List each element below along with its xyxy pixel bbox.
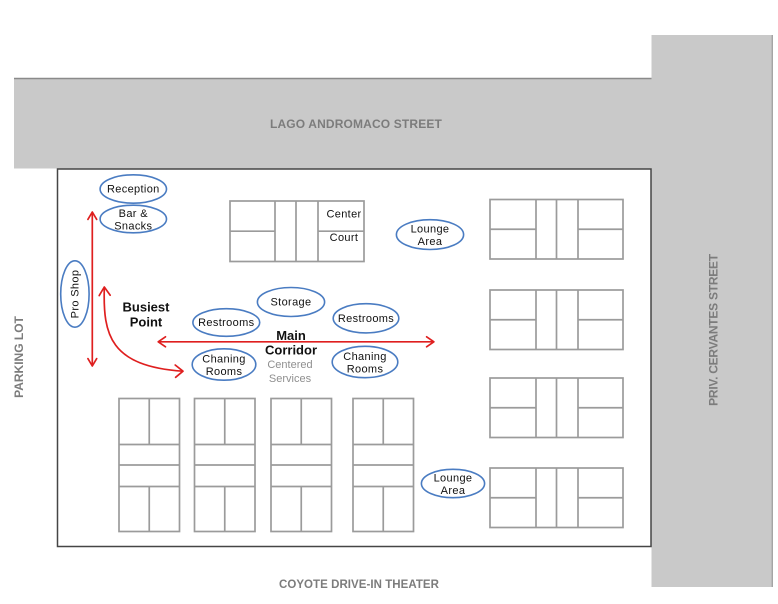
svg-text:Bar &: Bar & (119, 208, 149, 220)
svg-text:Snacks: Snacks (114, 220, 152, 232)
svg-text:Main: Main (276, 328, 306, 343)
svg-text:PARKING LOT: PARKING LOT (12, 315, 26, 397)
svg-text:LAGO ANDROMACO STREET: LAGO ANDROMACO STREET (270, 117, 443, 131)
svg-text:Storage: Storage (271, 297, 312, 309)
svg-text:Lounge: Lounge (434, 473, 473, 485)
svg-text:Area: Area (441, 485, 466, 497)
svg-text:Area: Area (418, 236, 443, 248)
svg-text:COYOTE DRIVE-IN THEATER: COYOTE DRIVE-IN THEATER (279, 579, 440, 591)
svg-text:Busiest: Busiest (123, 300, 171, 315)
svg-text:PRIV. CERVANTES STREET: PRIV. CERVANTES STREET (707, 253, 721, 406)
svg-text:Centered: Centered (267, 359, 312, 371)
svg-text:Rooms: Rooms (206, 366, 243, 378)
svg-text:Chaning: Chaning (343, 351, 386, 363)
svg-text:Chaning: Chaning (202, 354, 245, 366)
svg-text:Reception: Reception (107, 184, 160, 196)
svg-text:Point: Point (130, 315, 163, 330)
svg-text:Corridor: Corridor (265, 343, 317, 358)
svg-text:Court: Court (330, 232, 359, 244)
svg-text:Pro Shop: Pro Shop (69, 270, 81, 319)
svg-text:Restrooms: Restrooms (338, 313, 394, 325)
svg-text:Lounge: Lounge (411, 224, 450, 236)
svg-text:Services: Services (269, 373, 312, 385)
svg-text:Restrooms: Restrooms (198, 317, 254, 329)
svg-text:Rooms: Rooms (347, 363, 384, 375)
svg-text:Center: Center (326, 209, 361, 221)
